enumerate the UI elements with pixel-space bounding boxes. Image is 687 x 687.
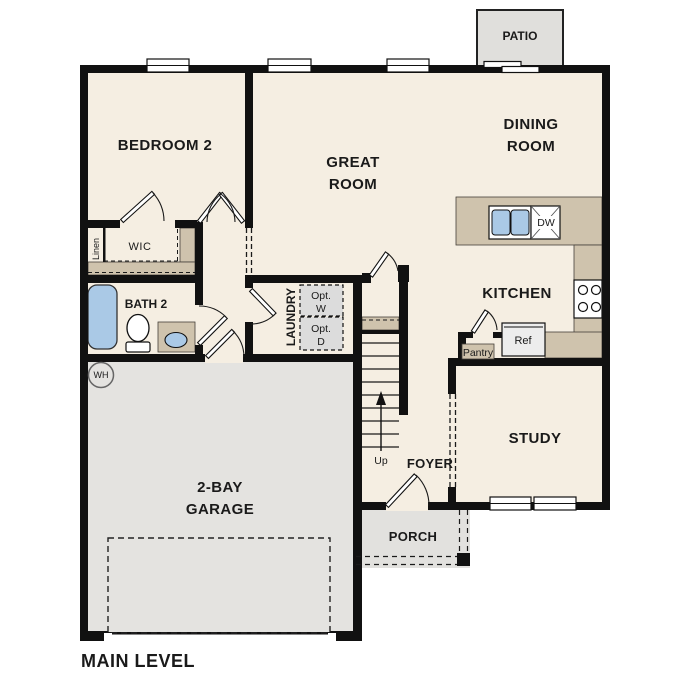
porch-label: PORCH <box>389 529 437 544</box>
vanity-sink <box>165 333 187 348</box>
toilet-bowl <box>127 315 149 342</box>
burner-icon <box>592 286 601 295</box>
toilet-tank <box>126 342 150 352</box>
vanity <box>158 322 195 352</box>
linen-divider <box>103 228 106 262</box>
up-label: Up <box>374 455 388 467</box>
sink-basin-right <box>511 210 529 235</box>
burner-icon <box>579 303 588 312</box>
wall-laundry-top <box>245 275 362 283</box>
floorplan-page: DW Ref <box>0 0 687 687</box>
opt-washer-label-line2: W <box>316 303 326 315</box>
wall-pantry-top-b <box>493 332 502 338</box>
opt-washer-label-line1: Opt. <box>311 290 331 302</box>
patio-label: PATIO <box>503 29 538 43</box>
toilet <box>126 315 150 353</box>
linen-label: Linen <box>91 238 101 260</box>
dishwasher: DW <box>531 206 560 239</box>
porch-post <box>457 553 470 566</box>
wic-label: WIC <box>129 241 152 253</box>
ref-label: Ref <box>514 335 532 347</box>
plan-title: MAIN LEVEL <box>81 651 195 671</box>
opt-dryer-label-line2: D <box>317 336 325 348</box>
laundry-label: LAUNDRY <box>284 288 298 346</box>
dining-label-line1: DINING <box>504 116 559 133</box>
wall-study-left-a <box>448 366 456 394</box>
wall-left <box>80 65 88 641</box>
stove <box>574 280 602 318</box>
wall-bath-top <box>80 275 203 283</box>
wall-stair-pillar <box>398 265 409 282</box>
water-heater-label: WH <box>94 370 109 380</box>
sink-basin-left <box>492 210 510 235</box>
water-heater: WH <box>89 363 114 388</box>
greatroom-label-line2: ROOM <box>329 176 377 193</box>
wall-bedroom-bottom-a <box>80 220 120 228</box>
tub-icon <box>88 285 117 349</box>
wall-stair-right <box>399 282 408 415</box>
opt-dryer-label-line1: Opt. <box>311 323 331 335</box>
floorplan-canvas: DW Ref <box>0 0 687 687</box>
burner-icon <box>592 303 601 312</box>
wall-pantry-top-a <box>458 332 473 338</box>
slider-panel-inner <box>502 67 539 73</box>
wall-study-left-b <box>448 487 456 510</box>
wall-center-vertical <box>353 277 362 641</box>
bedroom2-label: BEDROOM 2 <box>118 137 212 154</box>
dishwasher-label: DW <box>537 217 555 229</box>
foyer-label: FOYER <box>407 456 454 471</box>
wall-garage-bottom-left-stub <box>80 631 108 641</box>
wic-shelf-right <box>180 228 195 262</box>
wic-shelf-bottom <box>88 262 195 275</box>
dining-label-line2: ROOM <box>507 138 555 155</box>
kitchen-label: KITCHEN <box>482 285 551 302</box>
garage-door-notch-left <box>104 633 112 641</box>
kitchen-sink <box>489 206 531 239</box>
garage-label-line2: GARAGE <box>186 501 254 518</box>
wall-bedroom-bottom-b <box>175 220 197 228</box>
wall-right <box>602 65 610 510</box>
greatroom-label-line1: GREAT <box>326 154 379 171</box>
pantry-label: Pantry <box>463 347 494 359</box>
refrigerator: Ref <box>502 323 545 356</box>
burner-icon <box>579 286 588 295</box>
garage-door-notch-right <box>328 633 336 641</box>
bathtub <box>88 285 117 349</box>
bottom-counter <box>545 332 602 358</box>
wall-wic-right-a <box>195 222 203 305</box>
bath2-label: BATH 2 <box>125 297 168 311</box>
wall-bedroom-right <box>245 65 253 228</box>
study-label: STUDY <box>509 430 562 447</box>
stair-landing <box>362 317 399 330</box>
garage-label-line1: 2-BAY <box>197 479 243 496</box>
stair-first-riser <box>362 330 399 334</box>
